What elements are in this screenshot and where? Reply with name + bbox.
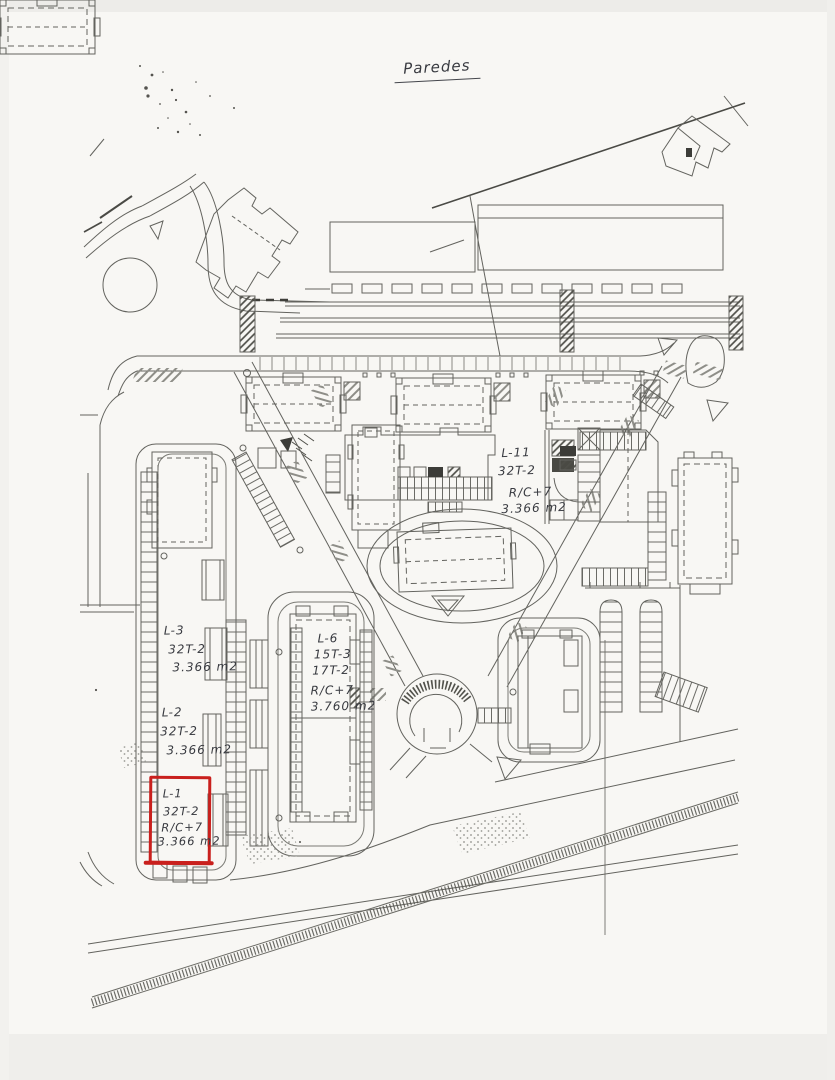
middle-court bbox=[240, 592, 530, 864]
label-lot-11: L-11 32T-2 R/C+7 3.366 m2 bbox=[499, 445, 566, 495]
lot-1-line: L-1 bbox=[163, 787, 226, 800]
plan-title-text: Paredes bbox=[403, 56, 471, 77]
plan-title: Paredes bbox=[394, 58, 481, 83]
lot-1-line: 32T-2 bbox=[163, 805, 226, 818]
level-crossing bbox=[729, 296, 743, 350]
label-lot-3: L-3 32T-2 3.366 m2 bbox=[164, 623, 230, 660]
lot-6-line: L-6 bbox=[317, 631, 383, 644]
label-lot-6: L-6 15T-3 17T-2 R/C+7 3.760 m2 bbox=[311, 631, 378, 692]
platform-ties bbox=[305, 284, 682, 293]
lot-6-line: 3.760 m2 bbox=[311, 699, 377, 712]
lot-11-line: 32T-2 bbox=[498, 463, 564, 477]
lot-2-line: 32T-2 bbox=[160, 724, 226, 737]
lot-1-line: R/C+7 bbox=[161, 821, 224, 834]
label-lot-2: L-2 32T-2 3.366 m2 bbox=[158, 705, 224, 742]
lot-2-line: 3.366 m2 bbox=[166, 743, 232, 756]
lot-2-line: L-2 bbox=[162, 705, 228, 718]
lot-6-line: 15T-3 bbox=[314, 647, 380, 660]
scanned-site-plan-page: Paredes L-11 32T-2 R/C+7 3.366 m2 L-6 15… bbox=[0, 0, 835, 1080]
site-plan-linework bbox=[0, 0, 835, 1080]
west-access-road bbox=[80, 392, 140, 886]
rail-tracks bbox=[276, 302, 740, 338]
lot-11-line: 3.366 m2 bbox=[501, 501, 567, 515]
label-lot-1: L-1 32T-2 R/C+7 3.366 m2 bbox=[163, 787, 227, 834]
northwest-junction bbox=[84, 139, 330, 313]
lot-11-line: L-11 bbox=[501, 445, 567, 459]
level-crossing bbox=[240, 296, 255, 352]
bollard-dots bbox=[363, 371, 658, 377]
railway-station bbox=[240, 205, 743, 352]
level-crossing bbox=[560, 290, 574, 352]
lot-3-line: 3.366 m2 bbox=[172, 660, 238, 673]
crosswalk bbox=[132, 368, 183, 382]
lot-3-line: 32T-2 bbox=[168, 642, 234, 655]
lot-1-line: 3.366 m2 bbox=[157, 835, 220, 848]
lot-3-line: L-3 bbox=[164, 623, 230, 636]
lot-11-line: R/C+7 bbox=[509, 485, 575, 499]
main-top-road bbox=[108, 343, 674, 396]
lot-6-line: R/C+7 bbox=[310, 683, 376, 696]
lot-6-line: 17T-2 bbox=[312, 663, 378, 676]
stipple-path bbox=[240, 828, 300, 864]
station-row-buildings bbox=[0, 0, 660, 432]
